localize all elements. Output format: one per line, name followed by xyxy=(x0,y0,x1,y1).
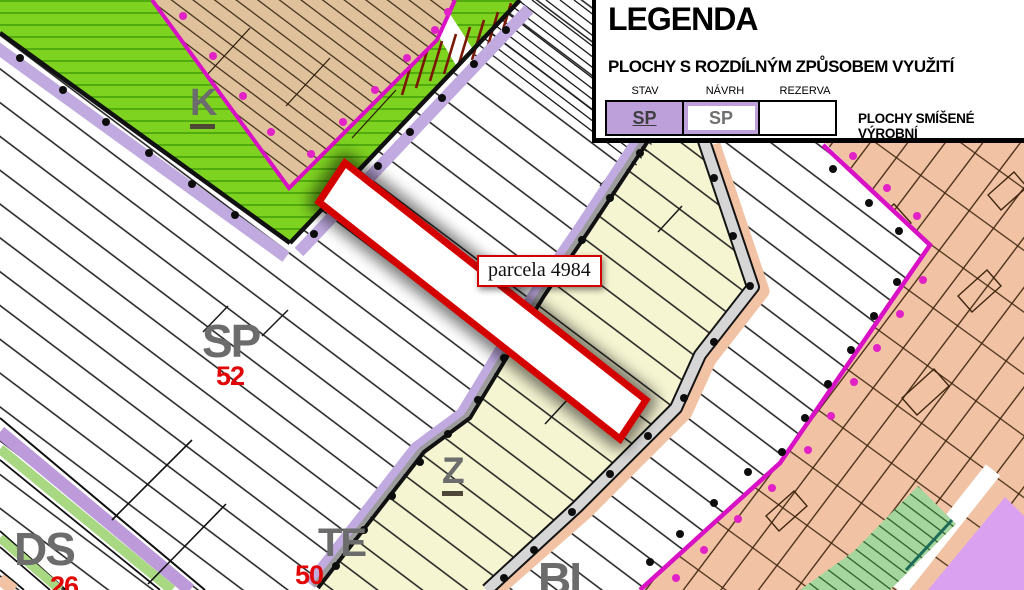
legend-zone-description: PLOCHY SMÍŠENÉ VÝROBNÍ xyxy=(858,111,1024,141)
zone-label-z: Z xyxy=(442,452,463,496)
legend-swatch-navrh: SP xyxy=(682,100,761,136)
legend-title: LEGENDA xyxy=(608,1,757,38)
legend-panel: LEGENDA PLOCHY S ROZDÍLNÝM ZPŮSOBEM VYUŽ… xyxy=(592,0,1024,143)
legend-swatch-rezerva xyxy=(758,100,837,136)
legend-col-navrh: NÁVRH xyxy=(685,85,765,97)
legend-column-headers: STAV NÁVRH REZERVA xyxy=(605,85,845,97)
zone-label-k: K xyxy=(190,84,215,129)
legend-col-rezerva: REZERVA xyxy=(765,85,845,97)
parcel-callout: parcela 4984 xyxy=(477,255,602,287)
legend-swatch-stav: SP xyxy=(605,100,684,136)
zoning-plan-view: K SP 52 Z TE 50 DS 26 BI parcela 4984 LE… xyxy=(0,0,1024,590)
zone-number-50: 50 xyxy=(295,562,323,589)
zone-label-te: TE xyxy=(318,523,365,563)
zone-number-52: 52 xyxy=(216,363,244,390)
zone-number-26: 26 xyxy=(50,573,78,590)
zone-label-bi: BI xyxy=(538,556,580,590)
zone-label-ds: DS xyxy=(14,526,74,572)
legend-subtitle: PLOCHY S ROZDÍLNÝM ZPŮSOBEM VYUŽITÍ xyxy=(608,57,954,77)
legend-col-stav: STAV xyxy=(605,85,685,97)
zone-label-sp: SP xyxy=(202,318,259,364)
legend-swatch-row: SP SP xyxy=(605,100,835,136)
